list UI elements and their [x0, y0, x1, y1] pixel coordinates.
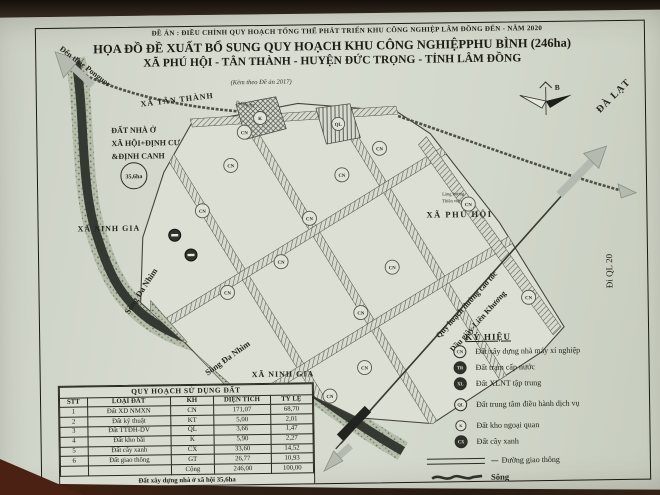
road-line-symbol [427, 457, 485, 464]
arrow-to-tphcm [324, 446, 351, 471]
cell: 246,00 [215, 464, 272, 475]
cell: K [171, 435, 215, 445]
cell: CX [171, 445, 215, 455]
parcel-code-cn: CN [465, 203, 473, 208]
cell: QL [170, 425, 214, 435]
cell: GT [171, 455, 215, 465]
legend-item-green: CX Đất cây xanh [441, 432, 660, 448]
legend-item-cn: CN Đất xây dựng nhà máy xí nghiệp [439, 342, 660, 358]
parcel-code-cn: CN [199, 210, 207, 215]
legend-item-road: ---- Đường giao thông [441, 453, 660, 465]
label-dat-nha-o-3: &ĐỊNH CANH [112, 151, 166, 161]
wastewater-symbol: XL [454, 377, 467, 390]
legend-label: Đất kho ngoại quan [476, 420, 539, 430]
cell: 3 [60, 427, 88, 437]
water-station-symbol: TR [454, 361, 467, 374]
parcel-code-cn: CN [376, 147, 384, 152]
parcel-code-cn: CN [525, 296, 533, 301]
river-wave-symbol [431, 472, 483, 483]
road-dash: ---- [491, 456, 498, 465]
svg-text:B: B [555, 83, 560, 92]
green-land-symbol: CX [455, 435, 468, 448]
arrow-to-dalat [559, 146, 608, 195]
parcel-code-cn: CN [224, 291, 232, 296]
cell: 2,27 [271, 434, 314, 444]
legend-label: Đất trung tâm điều hành dịch vụ [476, 399, 580, 409]
paper-sheet: ĐỀ ÁN : ĐIỀU CHỈNH QUY HOẠCH TỔNG THỂ PH… [0, 8, 660, 495]
legend-label: Đất trạm cấp nước [476, 362, 536, 372]
cell [60, 466, 88, 476]
cell: 14,52 [271, 443, 314, 453]
parcel-code-k: K [258, 117, 262, 122]
cell [88, 465, 171, 476]
service-center-symbol: QL [454, 398, 467, 411]
label-di-ql20: Đi QL 20 [604, 253, 614, 288]
legend-item-service-center: QL Đất trung tâm điều hành dịch vụ [440, 395, 660, 411]
col-ty-le: TỶ LỆ [270, 394, 313, 404]
legend-label: Đất xây dựng nhà máy xí nghiệp [475, 346, 580, 356]
cell: 5 [60, 447, 88, 457]
label-xa-ninh-gia: XÃ NINH GIA [252, 369, 315, 379]
cell: CN [170, 405, 214, 415]
cell: 1,47 [270, 424, 313, 434]
cell: 2,01 [270, 414, 313, 424]
label-dat-nha-o-2: XÃ HỘI+ĐỊNH CƯ [111, 138, 180, 148]
parcel-code-cn: CN [227, 164, 235, 169]
arrow-to-ql20 [618, 184, 636, 198]
col-stt: STT [59, 397, 87, 407]
factory-land-symbol: CN [453, 345, 466, 358]
cell: KT [170, 415, 214, 425]
label-xa-phu-hoi: XÃ PHÚ HỘI [426, 209, 492, 220]
land-use-table: QUY HOẠCH SỬ DỤNG ĐẤT STT LOẠI ĐẤT KH DI… [59, 383, 314, 477]
land-use-table-box: QUY HOẠCH SỬ DỤNG ĐẤT STT LOẠI ĐẤT KH DI… [58, 382, 315, 488]
cell: 68,70 [270, 404, 313, 414]
label-area-35-6ha: 35,6ha [125, 174, 142, 180]
legend-label: Đường giao thông [501, 455, 559, 465]
photo-of-planning-map: ĐỀ ÁN : ĐIỀU CHỈNH QUY HOẠCH TỔNG THỂ PH… [0, 0, 660, 495]
parcel-code-cn: CN [357, 312, 365, 317]
legend-item-wastewater: XL Đất XLNT tập trung [440, 374, 660, 390]
label-xa-tan-thanh: XÃ TÂN THÀNH [140, 90, 214, 109]
legend-item-water-station: TR Đất trạm cấp nước [440, 358, 660, 374]
parcel-code-ql: QL [335, 123, 342, 128]
label-da-lat: ĐÀ LẠT [594, 76, 633, 115]
label-thien-vien: Thiền viện [442, 198, 462, 203]
legend: KÝ HIỆU CN Đất xây dựng nhà máy xí nghiệ… [439, 329, 660, 482]
warehouse-symbol: K [455, 420, 466, 431]
legend-item-warehouse: K Đất kho ngoại quan [440, 416, 660, 432]
cell: 4 [60, 437, 88, 447]
parcel-code-cn: CN [278, 261, 286, 266]
parcel-code-cn: CN [338, 174, 346, 179]
water-station-mark [171, 234, 178, 236]
cell: 1 [60, 407, 88, 417]
label-dat-nha-o-1: ĐẤT NHÀ Ở [111, 124, 157, 135]
label-lang-huong: Làng hương [442, 191, 465, 196]
col-kh: KH [170, 396, 214, 406]
cell: 6 [60, 456, 88, 466]
cell: Cộng [171, 464, 215, 474]
parcel-code-cn: CN [389, 266, 397, 271]
legend-label: Đất XLNT tập trung [476, 378, 542, 388]
legend-label: Đất cây xanh [477, 436, 519, 446]
legend-title: KÝ HIỆU [465, 329, 660, 342]
label-xa-ninh-gia: XÃ NINH GIA [78, 224, 141, 234]
cell: 100,00 [271, 463, 314, 473]
parcel-code-cn: CN [241, 131, 249, 136]
cell: 2 [60, 417, 88, 427]
legend-label: Sông [491, 472, 509, 482]
parcel-code-cn: CN [361, 367, 369, 372]
wastewater-mark [187, 254, 194, 256]
parcel-code-cn: CN [327, 395, 335, 400]
cell: 10,93 [271, 453, 314, 463]
compass-rose: B [520, 82, 572, 116]
parcel-code-cn: CN [306, 217, 314, 222]
